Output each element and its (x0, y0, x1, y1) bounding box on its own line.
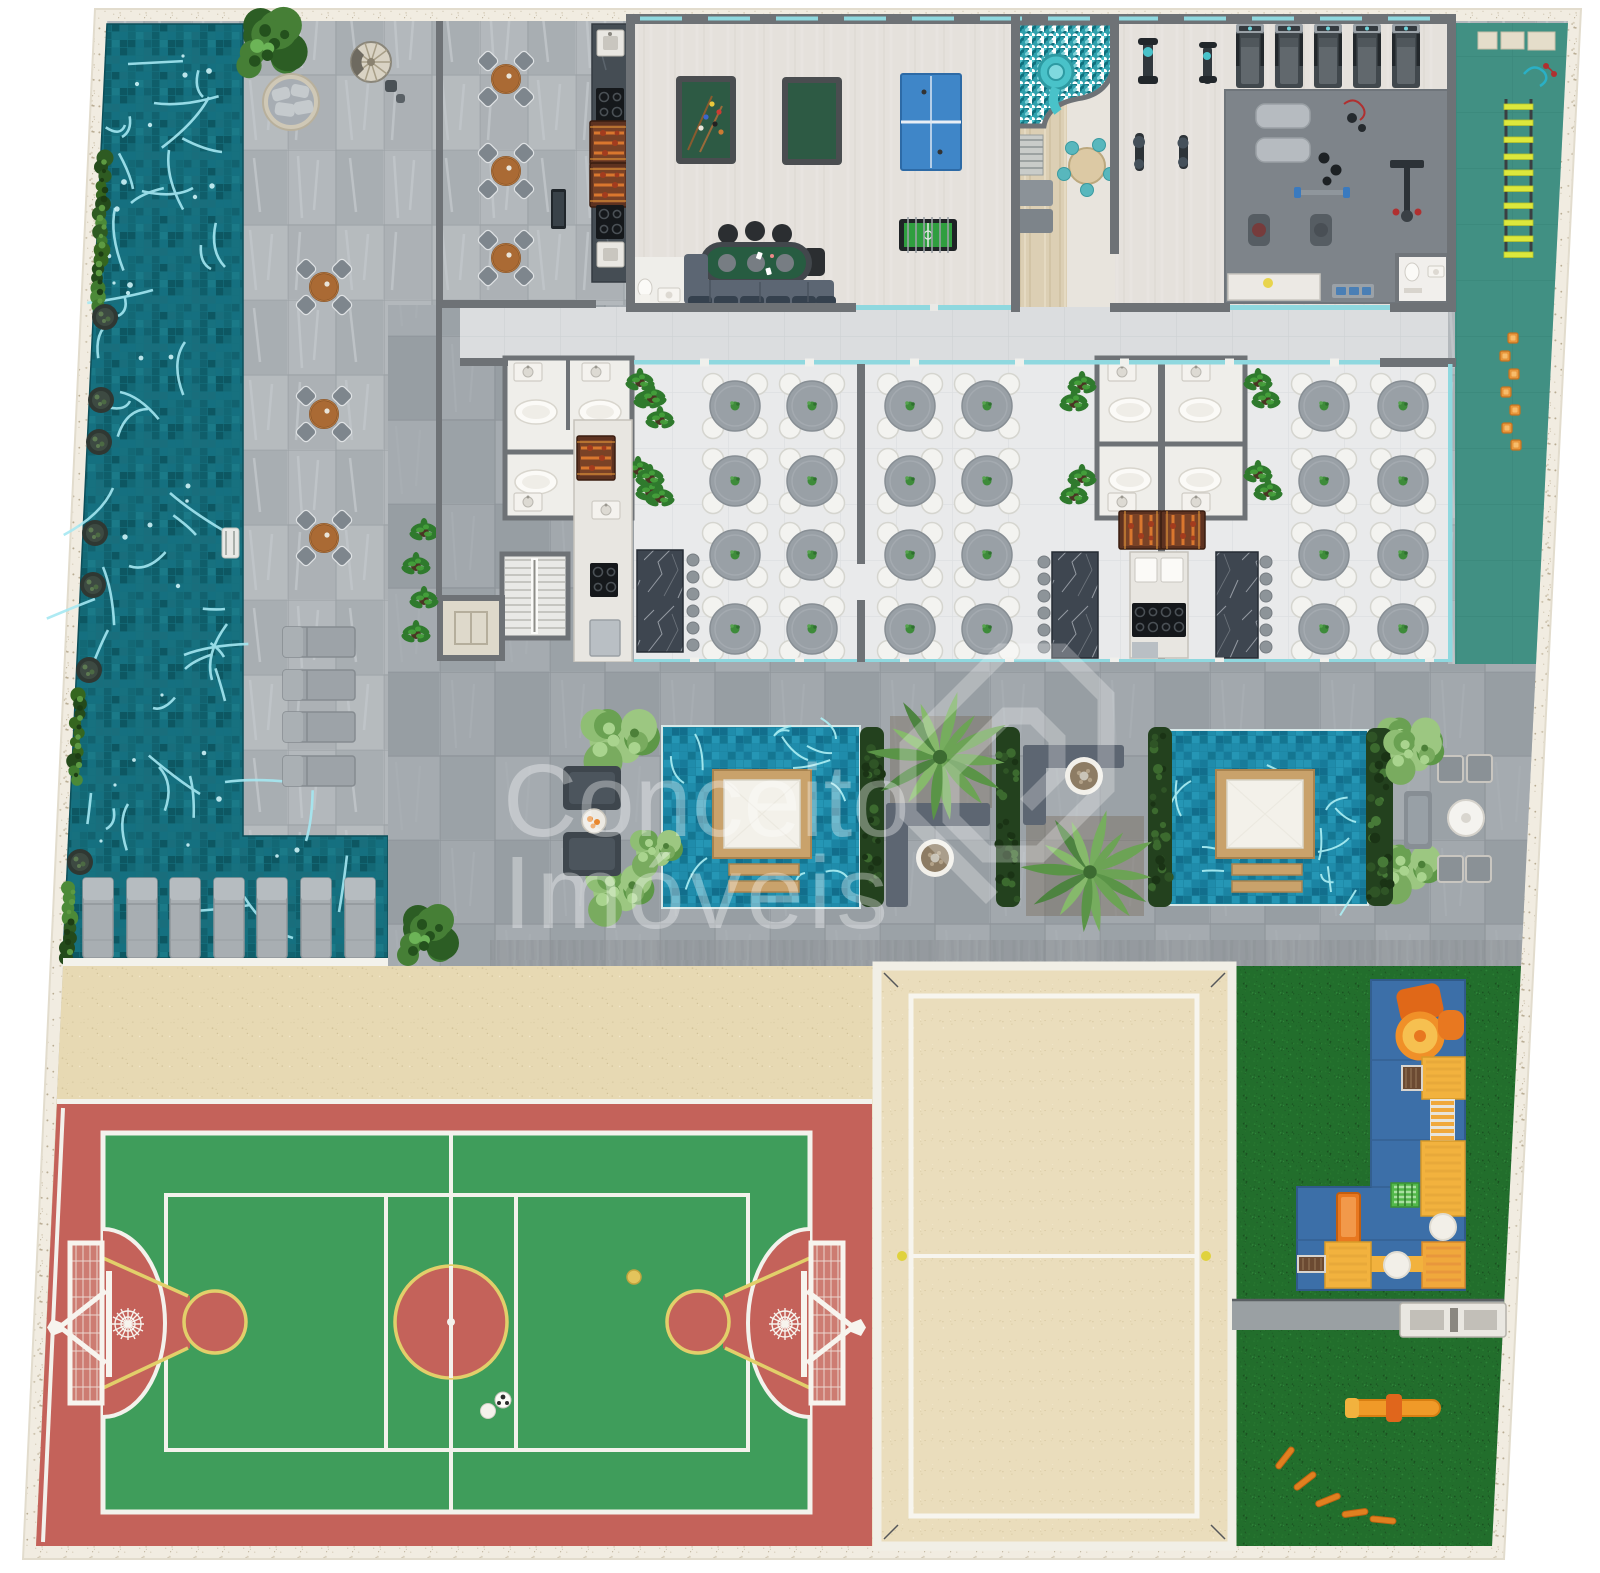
svg-text:Imóveis: Imóveis (503, 835, 893, 950)
